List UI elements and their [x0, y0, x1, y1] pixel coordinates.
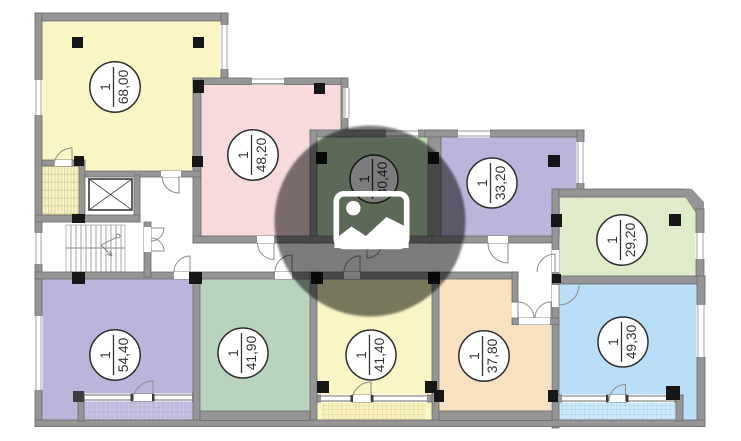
svg-text:1: 1 — [467, 352, 482, 360]
svg-text:48,20: 48,20 — [254, 137, 269, 172]
svg-text:41,40: 41,40 — [372, 337, 387, 372]
svg-text:1: 1 — [606, 338, 621, 346]
svg-text:37,80: 37,80 — [485, 338, 500, 373]
svg-text:1: 1 — [226, 349, 241, 357]
svg-text:1: 1 — [605, 236, 620, 244]
svg-text:49,30: 49,30 — [624, 324, 639, 359]
svg-text:1: 1 — [98, 83, 113, 91]
svg-text:33,20: 33,20 — [493, 165, 508, 200]
svg-text:1: 1 — [236, 151, 251, 159]
svg-text:1: 1 — [354, 351, 369, 359]
svg-text:68,00: 68,00 — [116, 69, 131, 104]
svg-text:41,90: 41,90 — [244, 335, 259, 370]
svg-text:54,40: 54,40 — [116, 337, 131, 372]
svg-text:29,20: 29,20 — [623, 222, 638, 257]
svg-text:1: 1 — [475, 179, 490, 187]
svg-text:1: 1 — [98, 351, 113, 359]
